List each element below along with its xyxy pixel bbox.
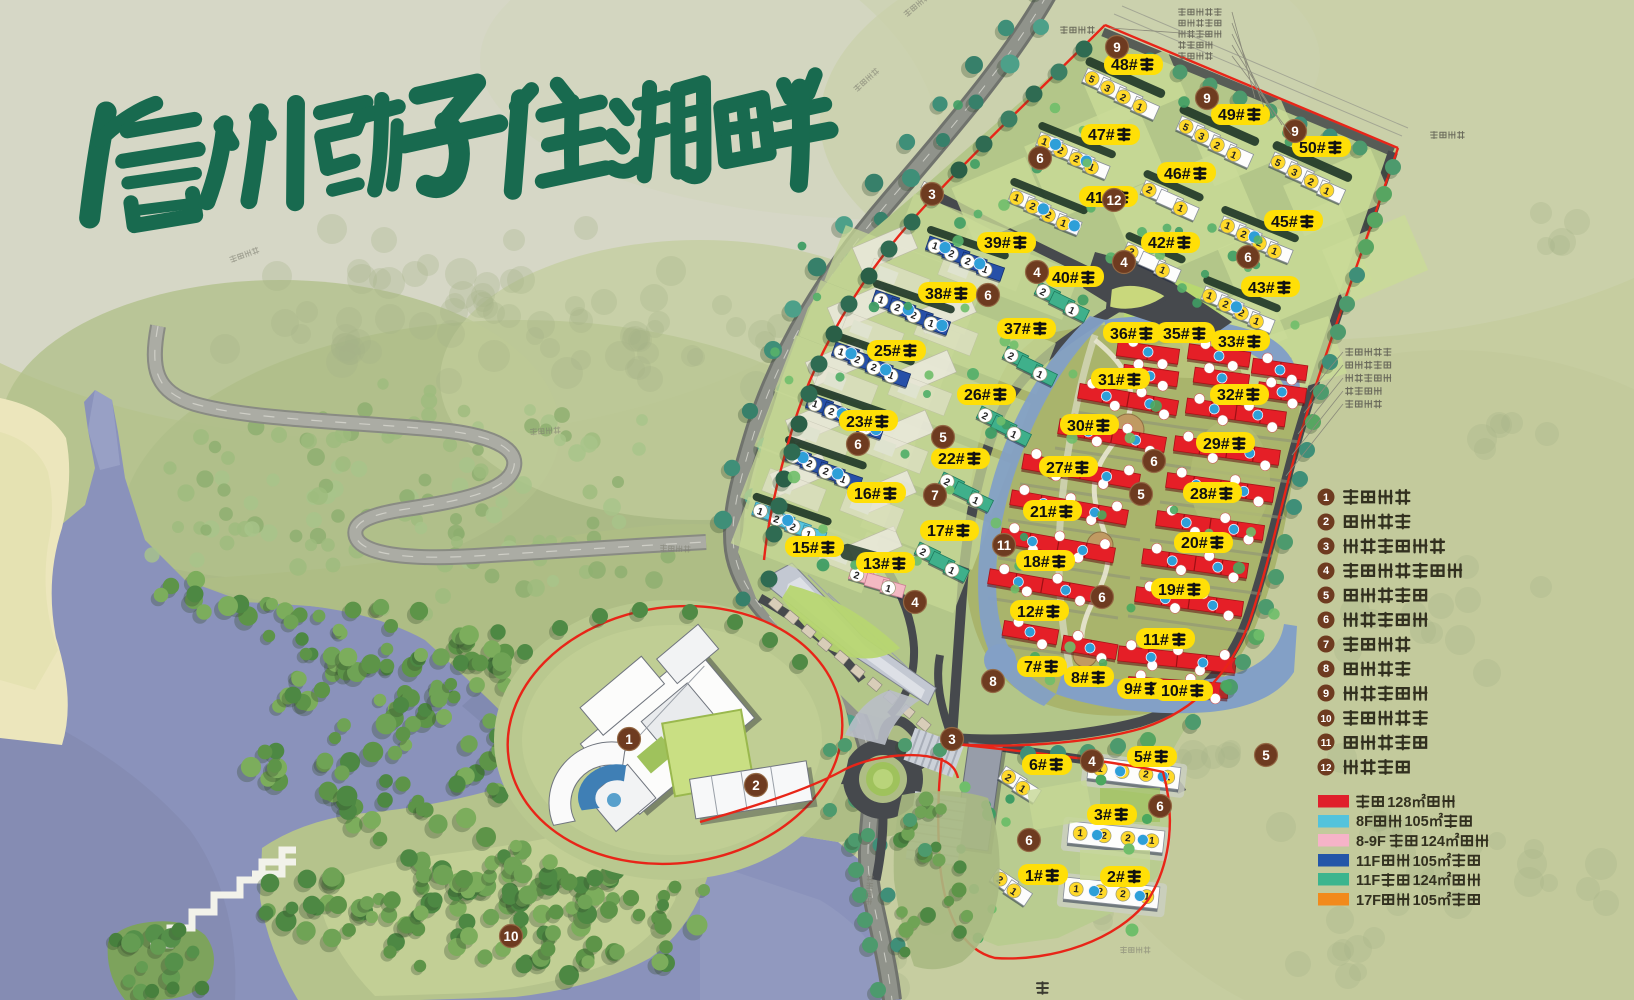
svg-text:17F: 17F — [1356, 893, 1381, 909]
svg-text:35#: 35# — [1163, 326, 1190, 343]
svg-text:20#: 20# — [1181, 535, 1208, 552]
svg-text:33#: 33# — [1218, 334, 1245, 351]
svg-text:29#: 29# — [1203, 436, 1230, 453]
svg-text:1: 1 — [625, 732, 633, 747]
svg-text:11: 11 — [1321, 738, 1332, 749]
svg-text:7#: 7# — [1024, 659, 1042, 676]
svg-text:12: 12 — [1106, 193, 1121, 208]
svg-text:21#: 21# — [1030, 504, 1057, 521]
svg-text:18#: 18# — [1023, 554, 1050, 571]
svg-text:6: 6 — [1244, 250, 1252, 265]
svg-text:17#: 17# — [927, 523, 954, 540]
svg-text:46#: 46# — [1164, 166, 1191, 183]
svg-text:11#: 11# — [1143, 632, 1169, 649]
svg-text:2: 2 — [752, 778, 760, 793]
svg-text:38#: 38# — [925, 286, 952, 303]
svg-text:50#: 50# — [1299, 140, 1326, 157]
svg-text:30#: 30# — [1067, 418, 1094, 435]
svg-text:3: 3 — [948, 732, 956, 747]
svg-text:6: 6 — [854, 437, 862, 452]
svg-text:6: 6 — [1025, 833, 1033, 848]
svg-text:16#: 16# — [854, 486, 881, 503]
svg-text:22#: 22# — [938, 451, 965, 468]
svg-text:11F: 11F — [1356, 873, 1380, 889]
svg-text:2: 2 — [1323, 516, 1329, 528]
svg-text:105㎡: 105㎡ — [1413, 852, 1452, 870]
svg-text:6: 6 — [984, 288, 992, 303]
svg-text:9: 9 — [1323, 688, 1329, 700]
svg-text:13#: 13# — [863, 556, 890, 573]
svg-text:2#: 2# — [1107, 869, 1125, 886]
svg-text:15#: 15# — [792, 540, 819, 557]
svg-text:26#: 26# — [964, 387, 991, 404]
svg-text:4: 4 — [1088, 754, 1096, 769]
svg-text:9: 9 — [1291, 124, 1299, 139]
svg-text:10: 10 — [1320, 714, 1332, 725]
svg-text:19#: 19# — [1158, 582, 1185, 599]
svg-text:10#: 10# — [1161, 683, 1188, 700]
svg-text:11: 11 — [997, 538, 1012, 553]
svg-text:6#: 6# — [1029, 757, 1047, 774]
svg-text:4: 4 — [1323, 565, 1330, 577]
svg-text:8-9F: 8-9F — [1356, 834, 1386, 850]
svg-text:32#: 32# — [1217, 387, 1244, 404]
svg-text:5: 5 — [1323, 590, 1329, 602]
svg-text:1: 1 — [1323, 492, 1329, 504]
svg-text:3: 3 — [1323, 541, 1329, 553]
svg-text:12#: 12# — [1017, 604, 1044, 621]
svg-text:124㎡: 124㎡ — [1421, 832, 1460, 850]
svg-text:27#: 27# — [1046, 460, 1073, 477]
svg-text:5#: 5# — [1134, 749, 1152, 766]
svg-text:128㎡: 128㎡ — [1387, 793, 1426, 811]
svg-text:23#: 23# — [846, 414, 873, 431]
svg-text:47#: 47# — [1088, 127, 1115, 144]
svg-text:6: 6 — [1150, 454, 1158, 469]
svg-text:105㎡: 105㎡ — [1404, 812, 1443, 830]
svg-text:4: 4 — [1120, 255, 1128, 270]
svg-text:8: 8 — [989, 674, 997, 689]
svg-text:11F: 11F — [1356, 854, 1380, 870]
svg-text:9: 9 — [1113, 40, 1121, 55]
svg-text:3: 3 — [928, 187, 936, 202]
svg-text:48#: 48# — [1111, 57, 1138, 74]
svg-text:4: 4 — [1033, 265, 1041, 280]
svg-text:12: 12 — [1320, 763, 1332, 774]
svg-text:6: 6 — [1098, 590, 1106, 605]
svg-text:42#: 42# — [1148, 235, 1175, 252]
svg-text:39#: 39# — [984, 235, 1011, 252]
svg-text:4: 4 — [911, 595, 919, 610]
svg-text:9#: 9# — [1124, 681, 1142, 698]
svg-text:10: 10 — [503, 929, 518, 944]
svg-text:49#: 49# — [1218, 107, 1245, 124]
svg-text:8F: 8F — [1356, 814, 1373, 830]
svg-text:25#: 25# — [874, 343, 901, 360]
svg-text:105㎡: 105㎡ — [1413, 891, 1452, 909]
svg-text:8: 8 — [1323, 663, 1329, 675]
svg-text:9: 9 — [1203, 91, 1211, 106]
svg-text:37#: 37# — [1004, 321, 1031, 338]
svg-text:8#: 8# — [1071, 670, 1089, 687]
svg-text:45#: 45# — [1271, 214, 1298, 231]
svg-text:40#: 40# — [1052, 270, 1079, 287]
svg-text:6: 6 — [1036, 151, 1044, 166]
svg-text:3#: 3# — [1094, 807, 1112, 824]
svg-text:5: 5 — [1262, 748, 1270, 763]
svg-text:7: 7 — [1323, 639, 1329, 651]
svg-text:28#: 28# — [1190, 486, 1217, 503]
svg-text:5: 5 — [1137, 487, 1145, 502]
svg-text:5: 5 — [939, 430, 947, 445]
svg-text:31#: 31# — [1098, 372, 1125, 389]
svg-text:43#: 43# — [1248, 280, 1275, 297]
svg-text:7: 7 — [931, 488, 939, 503]
svg-text:36#: 36# — [1110, 326, 1137, 343]
svg-text:1#: 1# — [1025, 868, 1043, 885]
svg-text:6: 6 — [1156, 799, 1164, 814]
svg-text:6: 6 — [1323, 614, 1329, 626]
svg-text:124㎡: 124㎡ — [1413, 871, 1452, 889]
